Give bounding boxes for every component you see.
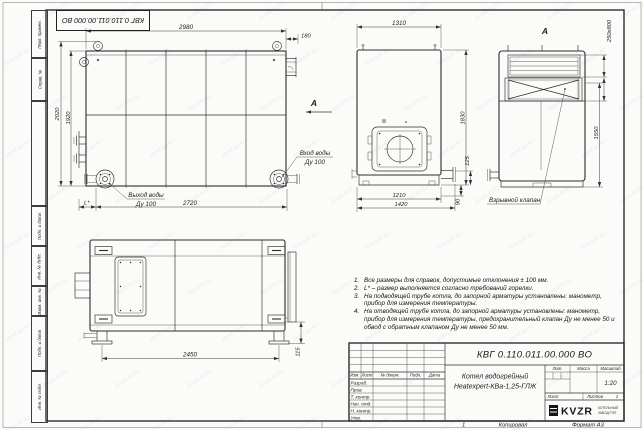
- col-izm: Изм.: [350, 373, 359, 378]
- view-arrow-label: А: [310, 98, 317, 108]
- format-label: Формат А3: [572, 423, 604, 429]
- title-block: КВГ 0.110.011.00.000 ВО Изм. Лист № доку…: [349, 343, 624, 421]
- margin-label: Инв. № подл.: [37, 383, 42, 410]
- dim-1830: 1830: [461, 111, 467, 125]
- dim-250x800: 250x800: [607, 19, 613, 43]
- margin-label: Инв. № дубл.: [37, 253, 42, 279]
- sheet-frame: [3, 3, 641, 428]
- margin-field-inv-dubl: Инв. № дубл.: [31, 245, 48, 287]
- product-name-1: Котел водогрейный: [462, 373, 529, 381]
- dim-1920: 1920: [66, 111, 72, 125]
- dim-2450: 2450: [182, 352, 198, 359]
- org-line-2: ЗАВОД РЭП: [598, 411, 617, 415]
- margin-label: Справ. №: [37, 70, 42, 90]
- org-line-1: КОТЕЛЬНЫЙ: [598, 406, 619, 410]
- section-view-label: А: [541, 26, 548, 36]
- view-side: 2450 115: [75, 240, 305, 362]
- water-inlet-nozzle: [270, 170, 300, 188]
- note-number: 4.: [354, 308, 364, 331]
- col-doc: № докум.: [381, 373, 400, 378]
- scale-label: Масштаб: [600, 366, 621, 371]
- view-front: 1310 1830 125 90 1210 1420: [352, 20, 473, 212]
- col-podp: Подп.: [410, 373, 421, 378]
- margin-label: Подп. и дата: [37, 330, 42, 357]
- row-prov: Пров.: [351, 388, 363, 393]
- note-number: 3.: [354, 293, 364, 309]
- margin-field-blank: [31, 100, 48, 207]
- col-list: Лист: [360, 373, 372, 378]
- sheets-value: 1: [616, 394, 619, 399]
- dim-1420: 1420: [395, 202, 409, 208]
- sheet-label: Лист: [546, 394, 558, 399]
- drawing-sheet: kotel-kv.kzkotel-kv.kzkotel-kv.kzkotel-k…: [0, 0, 644, 430]
- margin-label: Подп. и дата: [37, 213, 42, 240]
- doc-number: КВГ 0.110.011.00.000 ВО: [477, 350, 593, 361]
- mass-label: Масса: [577, 366, 590, 371]
- company-logo: KVZR КОТЕЛЬНЫЙ ЗАВОД РЭП: [549, 405, 619, 418]
- dim-1310: 1310: [392, 20, 407, 27]
- row-razrab: Разраб.: [351, 381, 368, 386]
- note-item: 4.На отводящей трубе котла, до запорной …: [354, 308, 622, 331]
- note-text: На подводящей трубе котла, до запорной а…: [364, 293, 622, 309]
- margin-label: Взам. инв. №: [37, 288, 42, 315]
- outlet-label: Выход воды: [128, 191, 164, 199]
- dim-125: 125: [465, 155, 471, 165]
- margin-field-inv-podl: Инв. № подл.: [31, 370, 48, 423]
- margin-field-perv-primen: Перв. примен.: [31, 10, 48, 59]
- note-item: 2.L* – размер выполняется согласно требо…: [354, 285, 622, 293]
- dim-90: 90: [456, 198, 462, 205]
- margin-field-vzam-inv: Взам. инв. №: [31, 285, 48, 317]
- doc-number-stamp: КВГ 0.110.011.00.000 ВО: [56, 10, 150, 31]
- outlet-dn-label: Ду 100: [135, 201, 156, 208]
- note-text: На отводящей трубе котла, до запорной ар…: [364, 308, 622, 331]
- dim-180: 180: [301, 34, 311, 40]
- note-text: Все размеры для справок, допустимые откл…: [364, 277, 622, 285]
- row-tkontr: Т. контр.: [351, 395, 371, 400]
- dim-1210: 1210: [393, 193, 407, 199]
- zone-marker: 1: [462, 423, 465, 429]
- inlet-dn-label: Ду 100: [304, 159, 325, 166]
- sheets-label: Листов: [586, 394, 603, 399]
- dim-2020: 2020: [55, 107, 61, 122]
- view-plan: А 2980 180 2020 1920 L* 2720 Выход воды …: [55, 24, 333, 211]
- legs: [92, 331, 289, 344]
- note-item: 3.На подводящей трубе котла, до запорной…: [354, 293, 622, 309]
- explosion-valve: [505, 78, 582, 101]
- dim-l-star: L*: [84, 201, 90, 207]
- margin-field-podp-data-2: Подп. и дата: [31, 315, 48, 372]
- doc-number-stamp-text: КВГ 0.110.011.00.000 ВО: [62, 16, 144, 25]
- col-data: Дата: [428, 373, 441, 378]
- water-outlet-nozzle: [85, 170, 115, 188]
- view-section-a: А 25: [487, 19, 613, 204]
- lit-label: Лит.: [551, 366, 562, 371]
- logo-text: KVZR: [561, 406, 593, 418]
- note-number: 2.: [354, 285, 364, 293]
- margin-field-sprav: Справ. №: [31, 57, 48, 102]
- lifting-eye: [80, 42, 282, 67]
- note-number: 1.: [354, 277, 364, 285]
- row-nachotd: Нач. отд.: [351, 402, 372, 407]
- copied-label: Копировал: [499, 423, 529, 429]
- row-nkontr: Н. контр.: [351, 409, 372, 414]
- dim-2980: 2980: [178, 24, 194, 31]
- note-item: 1.Все размеры для справок, допустимые от…: [354, 277, 622, 285]
- drawing-canvas: А 2980 180 2020 1920 L* 2720 Выход воды …: [0, 0, 644, 430]
- scale-value: 1:20: [604, 380, 617, 387]
- dim-115: 115: [296, 347, 302, 357]
- support-lugs: [95, 247, 285, 324]
- dim-1550: 1550: [594, 126, 600, 140]
- explosion-valve-label: Взрывной клапан: [489, 196, 541, 204]
- note-text: L* – размер выполняется согласно требова…: [364, 285, 622, 293]
- dim-2720: 2720: [182, 200, 198, 207]
- margin-field-podp-data-1: Подп. и дата: [31, 205, 48, 247]
- burner-door: [368, 127, 431, 171]
- flue-bracket: [286, 57, 296, 77]
- side-pipe-stubs: [74, 131, 86, 168]
- margin-label: Перв. примен.: [37, 20, 42, 49]
- product-name-2: Heatexpert-КВа-1,25-ГЛЖ: [454, 384, 537, 391]
- notes-block: 1.Все размеры для справок, допустимые от…: [354, 277, 622, 332]
- row-utv: Утв.: [351, 416, 362, 421]
- side-door: [115, 257, 146, 316]
- inlet-label: Вход воды: [300, 149, 331, 157]
